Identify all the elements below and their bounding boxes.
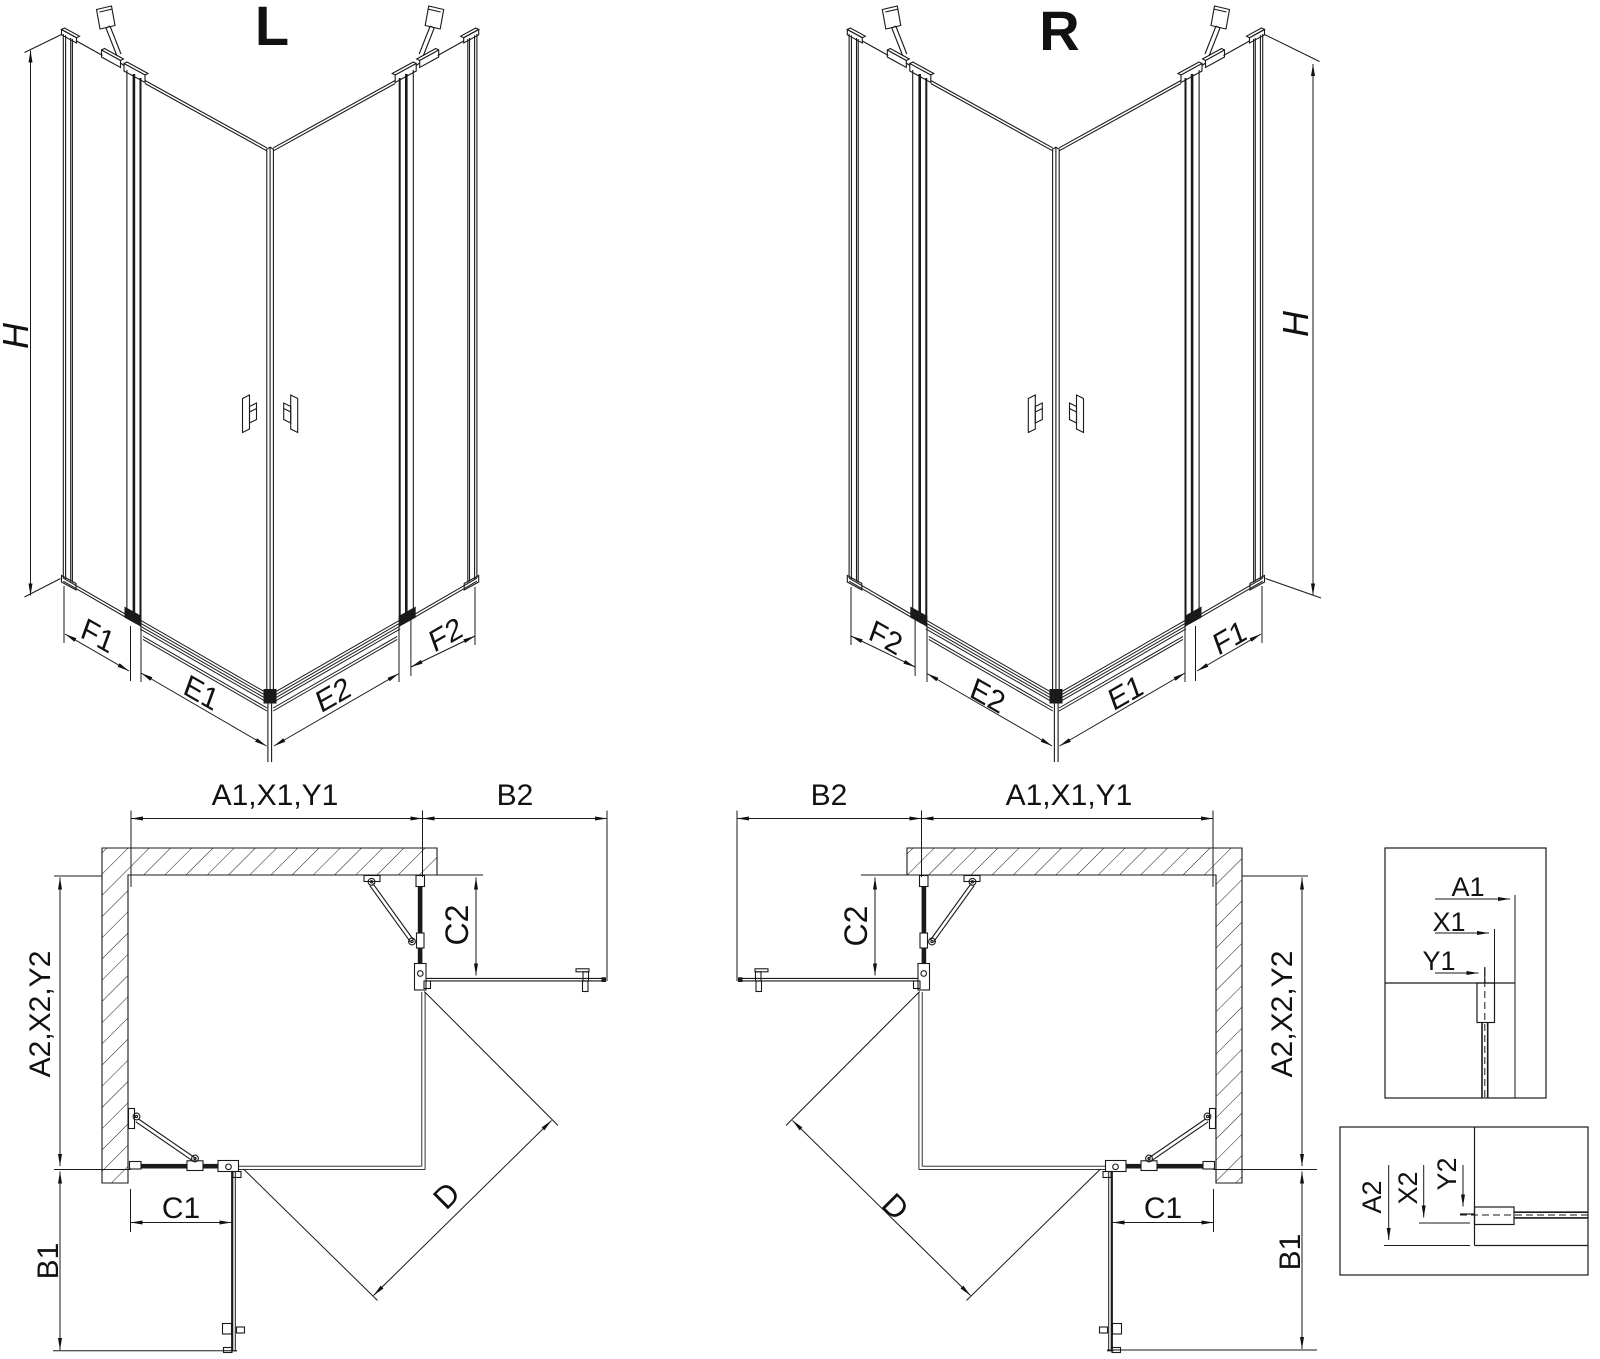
- svg-text:E1: E1: [179, 669, 222, 718]
- svg-text:A2,X2,Y2: A2,X2,Y2: [24, 951, 57, 1078]
- svg-text:Y2: Y2: [1432, 1157, 1462, 1190]
- svg-text:C1: C1: [162, 1192, 200, 1225]
- svg-text:B1: B1: [32, 1243, 65, 1280]
- svg-text:Y1: Y1: [1422, 946, 1455, 976]
- svg-text:E1: E1: [1104, 669, 1147, 718]
- svg-text:A2,X2,Y2: A2,X2,Y2: [1266, 951, 1299, 1078]
- svg-text:E2: E2: [312, 671, 355, 720]
- svg-text:D: D: [875, 1186, 916, 1227]
- svg-text:C1: C1: [1144, 1192, 1182, 1225]
- svg-text:F1: F1: [1209, 614, 1251, 662]
- svg-text:B1: B1: [1274, 1234, 1307, 1271]
- svg-text:R: R: [1039, 0, 1079, 62]
- svg-text:L: L: [255, 0, 289, 57]
- svg-text:H: H: [0, 322, 36, 349]
- svg-text:A2: A2: [1357, 1180, 1387, 1213]
- svg-text:F2: F2: [425, 611, 467, 659]
- svg-text:F2: F2: [865, 614, 907, 662]
- svg-text:H: H: [1275, 310, 1316, 337]
- svg-text:B2: B2: [497, 779, 534, 812]
- svg-text:X2: X2: [1393, 1171, 1423, 1204]
- svg-text:C2: C2: [838, 906, 874, 947]
- svg-text:B2: B2: [811, 779, 848, 812]
- svg-text:A1: A1: [1451, 872, 1484, 902]
- svg-text:C2: C2: [439, 905, 475, 946]
- svg-text:A1,X1,Y1: A1,X1,Y1: [212, 779, 339, 812]
- svg-text:F1: F1: [77, 612, 119, 660]
- svg-text:A1,X1,Y1: A1,X1,Y1: [1006, 779, 1133, 812]
- svg-text:X1: X1: [1432, 907, 1465, 937]
